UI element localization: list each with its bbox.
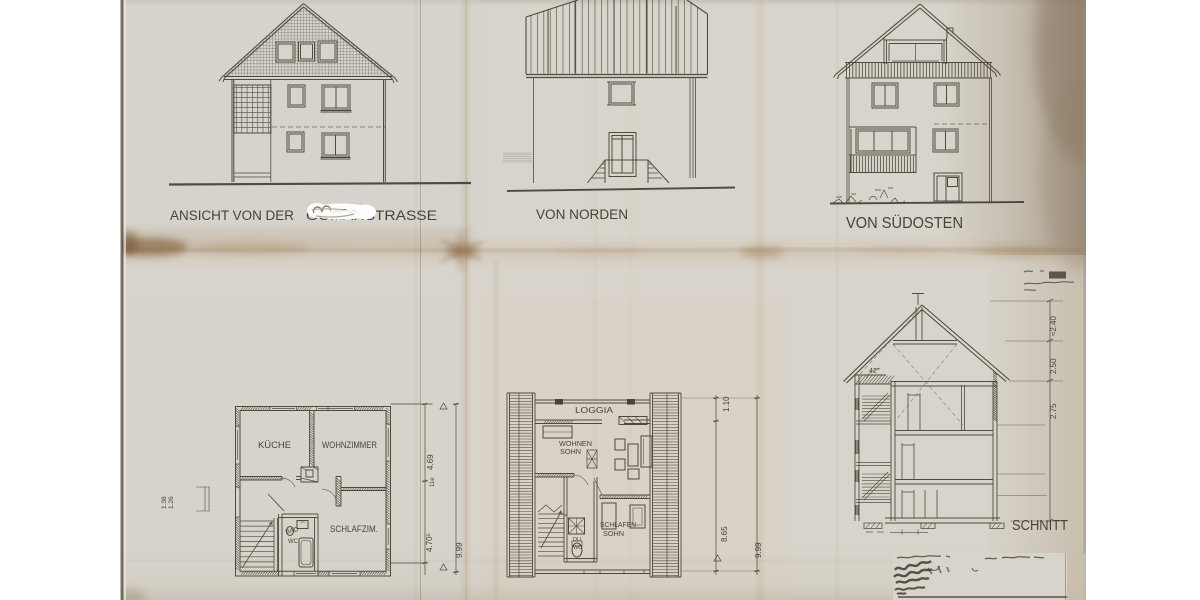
svg-text:≈2.40: ≈2.40 <box>1049 315 1058 336</box>
svg-text:4.69: 4.69 <box>426 454 435 470</box>
svg-text:ANSICHT VON DER: ANSICHT VON DER <box>170 208 294 223</box>
svg-text:4.70⁵: 4.70⁵ <box>425 533 434 552</box>
svg-text:KÜCHE: KÜCHE <box>258 440 291 450</box>
svg-text:1.10: 1.10 <box>722 396 731 412</box>
svg-text:1.38: 1.38 <box>161 496 168 509</box>
svg-text:SOHN: SOHN <box>603 529 624 538</box>
svg-text:DU.: DU. <box>573 537 583 543</box>
svg-text:WC: WC <box>573 545 582 551</box>
svg-text:VON NORDEN: VON NORDEN <box>536 207 628 222</box>
svg-text:SOHN: SOHN <box>560 447 581 456</box>
svg-text:LOGGIA: LOGGIA <box>575 406 614 415</box>
svg-text:SCHLAFEN: SCHLAFEN <box>600 520 636 529</box>
svg-text:9.99: 9.99 <box>754 542 763 558</box>
svg-text:8.65: 8.65 <box>720 526 729 542</box>
svg-text:2.50: 2.50 <box>1049 358 1058 374</box>
svg-text:WC: WC <box>288 539 299 545</box>
svg-text:1.26: 1.26 <box>168 496 175 509</box>
svg-text:SCHLAFZIM.: SCHLAFZIM. <box>330 524 378 534</box>
svg-text:11e: 11e <box>430 477 436 487</box>
svg-text:9.99: 9.99 <box>455 542 464 558</box>
svg-text:2.75: 2.75 <box>1049 403 1058 419</box>
svg-text:SCHNITT: SCHNITT <box>1012 517 1068 534</box>
svg-text:WOHNZIMMER: WOHNZIMMER <box>322 440 377 450</box>
svg-text:VON SÜDOSTEN: VON SÜDOSTEN <box>846 214 963 232</box>
